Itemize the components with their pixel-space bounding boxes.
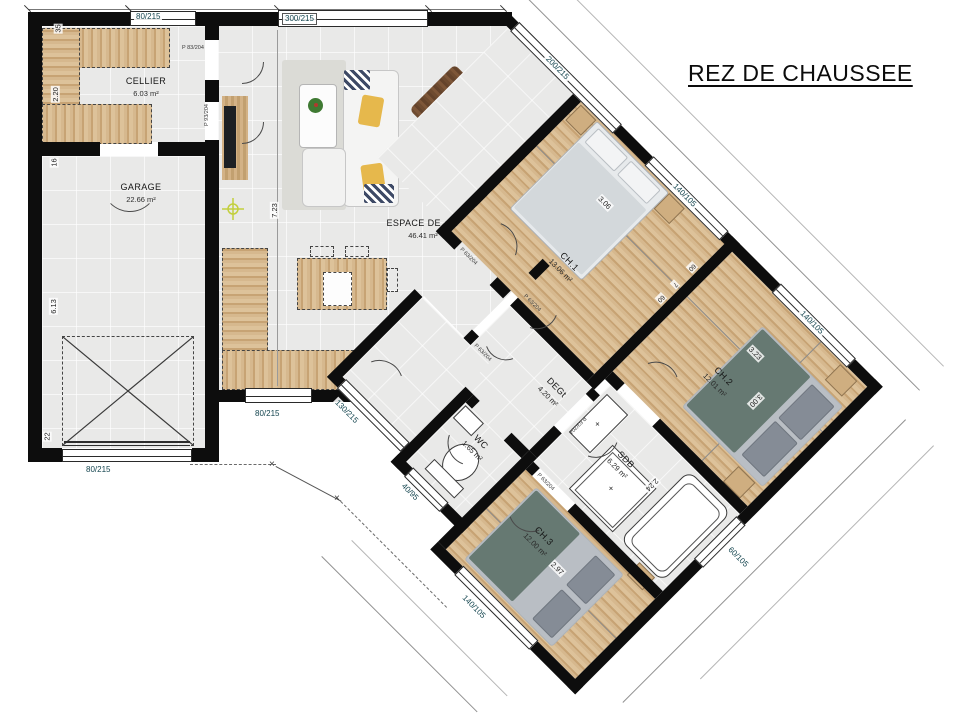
wall — [28, 12, 130, 26]
wall — [205, 80, 219, 102]
striped-pillow — [344, 70, 370, 90]
wall — [28, 12, 42, 462]
coffee-table — [299, 84, 337, 148]
window-label: 80/215 — [134, 12, 162, 22]
room-name: CELLIER — [96, 76, 196, 86]
dimension: 22 — [43, 431, 52, 441]
room-area: 6.03 m² — [96, 89, 196, 98]
garage-label: GARAGE 22.66 m² — [91, 182, 191, 204]
cellier-label: CELLIER 6.03 m² — [96, 76, 196, 98]
wall — [42, 142, 100, 156]
garage-door-panel-line — [64, 445, 190, 446]
window-label: 60/105 — [724, 544, 751, 571]
porch-solid-line — [276, 466, 342, 502]
door-label: P 83/204 — [182, 45, 204, 51]
page-title: REZ DE CHAUSSEE — [688, 60, 928, 87]
garage-parking-box — [62, 336, 194, 446]
plant-decor-detail — [314, 103, 318, 107]
wall — [218, 390, 245, 402]
wall — [28, 448, 62, 462]
dimension: 35 — [54, 23, 63, 33]
sw-dimension-line-1 — [321, 556, 477, 712]
wall — [158, 142, 205, 156]
window-label: 80/215 — [84, 465, 112, 475]
floor-plan: × × REZ DE CHAUSSEE — [0, 0, 960, 715]
garage-door-opening — [62, 449, 192, 462]
room-area: 22.66 m² — [91, 195, 191, 204]
room-name: GARAGE — [91, 182, 191, 192]
window-label: 80/215 — [253, 409, 281, 419]
dimension: 6.13 — [49, 298, 58, 315]
dimension: 7.23 — [270, 202, 279, 219]
cellier-counter-bottom — [42, 104, 152, 144]
dimension: 16 — [50, 157, 59, 167]
wall — [205, 140, 219, 462]
x-mark-lines — [63, 337, 193, 445]
window-label: 300/215 — [282, 13, 317, 25]
porch-x-mark: × — [269, 459, 275, 470]
door-label: P 93/204 — [204, 104, 210, 126]
porch-dashed-line — [190, 464, 276, 465]
top-dimension-line — [28, 9, 505, 10]
dimension: 2.20 — [51, 86, 60, 103]
wall — [205, 12, 219, 40]
crosshair-marker — [222, 198, 244, 220]
porch-x-mark: × — [334, 493, 340, 504]
garage-door-panel — [64, 441, 190, 443]
